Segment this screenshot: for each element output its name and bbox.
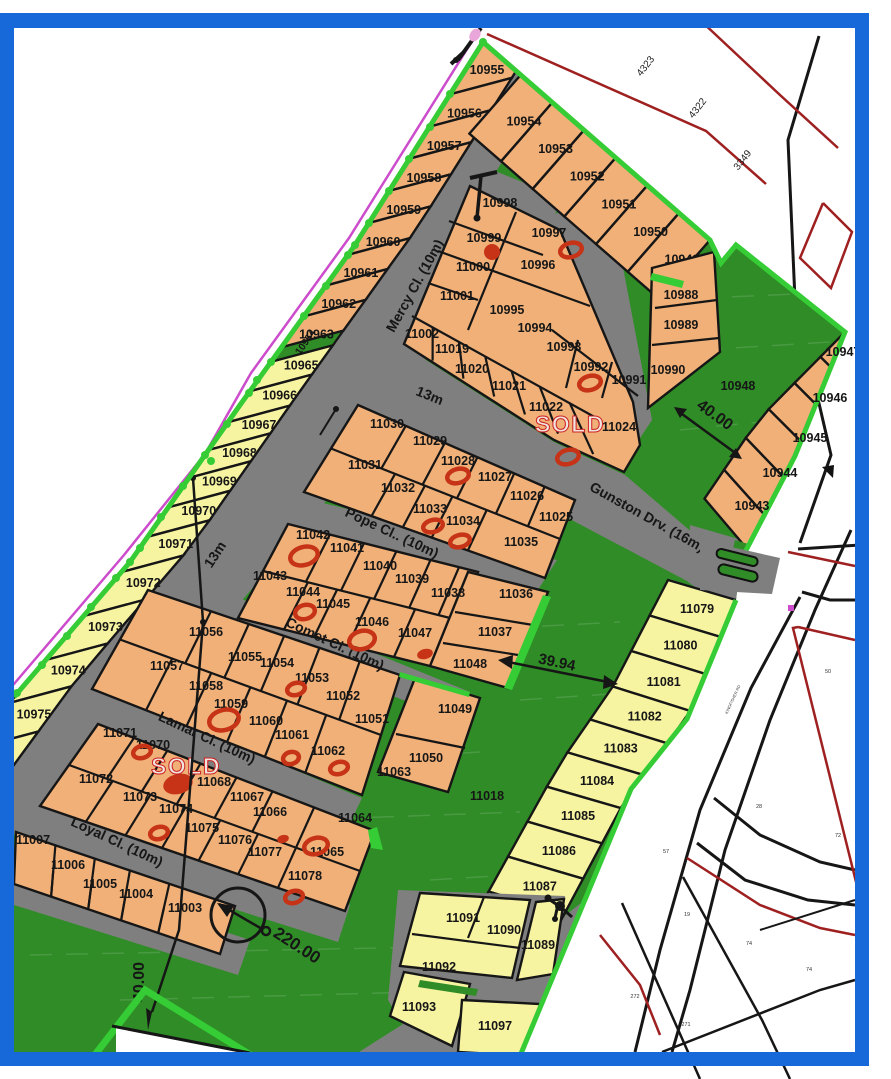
svg-text:10958: 10958 [407,171,442,185]
svg-text:11087: 11087 [523,879,557,893]
svg-text:11001: 11001 [440,289,474,303]
svg-text:10991: 10991 [612,373,647,387]
svg-text:11003: 11003 [168,901,202,915]
svg-text:10973: 10973 [88,620,123,634]
svg-text:10969: 10969 [202,475,237,489]
svg-text:10956: 10956 [447,107,482,121]
svg-text:11097: 11097 [478,1019,512,1033]
svg-text:11046: 11046 [355,615,389,629]
svg-text:28: 28 [756,804,762,810]
svg-text:10967: 10967 [242,418,277,432]
svg-text:271: 271 [681,1022,690,1028]
svg-text:11085: 11085 [561,809,595,823]
svg-text:11036: 11036 [499,587,533,601]
svg-text:11000: 11000 [456,260,490,274]
svg-text:11024: 11024 [602,420,636,434]
svg-text:11038: 11038 [431,586,465,600]
svg-text:11030: 11030 [370,417,404,431]
svg-text:10988: 10988 [664,288,699,302]
svg-text:11072: 11072 [79,772,113,786]
svg-text:10971: 10971 [158,537,193,551]
svg-text:11018: 11018 [470,789,504,803]
svg-text:11063: 11063 [377,765,411,779]
svg-text:11031: 11031 [348,458,382,472]
svg-text:10974: 10974 [51,663,86,677]
svg-text:11052: 11052 [326,689,360,703]
svg-text:11044: 11044 [286,585,320,599]
svg-text:11084: 11084 [580,774,614,788]
svg-text:11042: 11042 [296,528,330,542]
svg-text:11021: 11021 [492,379,526,393]
svg-text:11037: 11037 [478,625,512,639]
svg-text:10960: 10960 [366,235,401,249]
svg-text:SOLD: SOLD [151,753,221,779]
svg-text:11019: 11019 [435,342,469,356]
svg-text:10953: 10953 [538,142,573,156]
svg-text:10952: 10952 [570,170,605,184]
svg-text:11078: 11078 [288,869,322,883]
svg-text:72: 72 [835,833,841,839]
svg-text:10946: 10946 [813,391,848,405]
svg-text:11058: 11058 [189,679,223,693]
svg-text:11040: 11040 [363,559,397,573]
svg-text:11081: 11081 [647,675,681,689]
svg-text:11079: 11079 [680,602,714,616]
svg-text:11086: 11086 [542,844,576,858]
svg-text:74: 74 [806,967,812,973]
svg-text:11073: 11073 [123,790,157,804]
svg-text:11066: 11066 [253,805,287,819]
svg-text:10999: 10999 [467,231,502,245]
svg-text:10961: 10961 [344,266,379,280]
svg-text:11025: 11025 [539,510,573,524]
svg-text:11043: 11043 [253,569,287,583]
svg-text:11007: 11007 [16,833,50,847]
svg-text:11034: 11034 [446,514,480,528]
svg-text:11033: 11033 [413,502,447,516]
svg-text:11055: 11055 [228,650,262,664]
svg-text:10948: 10948 [721,379,756,393]
svg-text:11039: 11039 [395,572,429,586]
svg-text:272: 272 [630,994,639,1000]
svg-text:11005: 11005 [83,877,117,891]
svg-text:10975: 10975 [17,708,52,722]
svg-text:11083: 11083 [604,742,638,756]
svg-text:11045: 11045 [316,597,350,611]
svg-text:SOLD: SOLD [535,411,605,437]
svg-text:11067: 11067 [230,790,264,804]
svg-text:11048: 11048 [453,657,487,671]
svg-text:11077: 11077 [248,845,282,859]
svg-text:11049: 11049 [438,702,472,716]
svg-text:11006: 11006 [51,858,85,872]
svg-text:11026: 11026 [510,489,544,503]
svg-text:10962: 10962 [321,297,356,311]
svg-text:11061: 11061 [275,728,309,742]
svg-text:10955: 10955 [470,63,505,77]
svg-text:11056: 11056 [189,625,223,639]
svg-text:11071: 11071 [103,726,137,740]
svg-text:10954: 10954 [507,114,542,128]
svg-text:10965: 10965 [284,359,319,373]
svg-text:11032: 11032 [381,481,415,495]
svg-text:10945: 10945 [793,431,828,445]
svg-text:10993: 10993 [547,340,582,354]
svg-text:11050: 11050 [409,751,443,765]
svg-text:19: 19 [684,912,690,918]
svg-text:10970: 10970 [181,504,216,518]
svg-text:50: 50 [825,669,831,675]
svg-text:11041: 11041 [330,541,364,555]
svg-text:11082: 11082 [628,710,662,724]
svg-text:11062: 11062 [311,744,345,758]
svg-text:11054: 11054 [260,656,294,670]
svg-text:10966: 10966 [262,389,297,403]
svg-text:10944: 10944 [763,466,798,480]
svg-text:11028: 11028 [441,454,475,468]
svg-text:11091: 11091 [446,911,480,925]
svg-text:11047: 11047 [398,626,432,640]
svg-text:10990: 10990 [651,363,686,377]
svg-text:11035: 11035 [504,535,538,549]
svg-text:11029: 11029 [413,434,447,448]
svg-text:10957: 10957 [427,139,462,153]
svg-text:10950: 10950 [633,225,668,239]
svg-text:10951: 10951 [602,197,637,211]
svg-text:11076: 11076 [218,833,252,847]
svg-text:10959: 10959 [386,203,421,217]
svg-text:11075: 11075 [185,821,219,835]
svg-text:11002: 11002 [405,327,439,341]
svg-text:11080: 11080 [663,639,697,653]
svg-text:10989: 10989 [664,318,699,332]
svg-text:74: 74 [746,941,752,947]
svg-text:10943: 10943 [735,499,770,513]
svg-text:11060: 11060 [249,714,283,728]
svg-text:11064: 11064 [338,811,372,825]
svg-text:10996: 10996 [521,258,556,272]
svg-text:10994: 10994 [518,321,553,335]
svg-text:11090: 11090 [487,923,521,937]
svg-text:11051: 11051 [355,712,389,726]
svg-text:10998: 10998 [483,196,518,210]
svg-text:10997: 10997 [532,226,567,240]
svg-text:10995: 10995 [490,303,525,317]
svg-text:11093: 11093 [402,1000,436,1014]
svg-text:57: 57 [663,849,669,855]
svg-text:11057: 11057 [150,659,184,673]
svg-text:10992: 10992 [574,360,609,374]
svg-text:11004: 11004 [119,887,153,901]
svg-text:11089: 11089 [521,938,555,952]
svg-text:11020: 11020 [455,362,489,376]
svg-text:11092: 11092 [422,960,456,974]
svg-text:11027: 11027 [478,470,512,484]
svg-text:10968: 10968 [222,446,257,460]
svg-text:10972: 10972 [126,576,161,590]
